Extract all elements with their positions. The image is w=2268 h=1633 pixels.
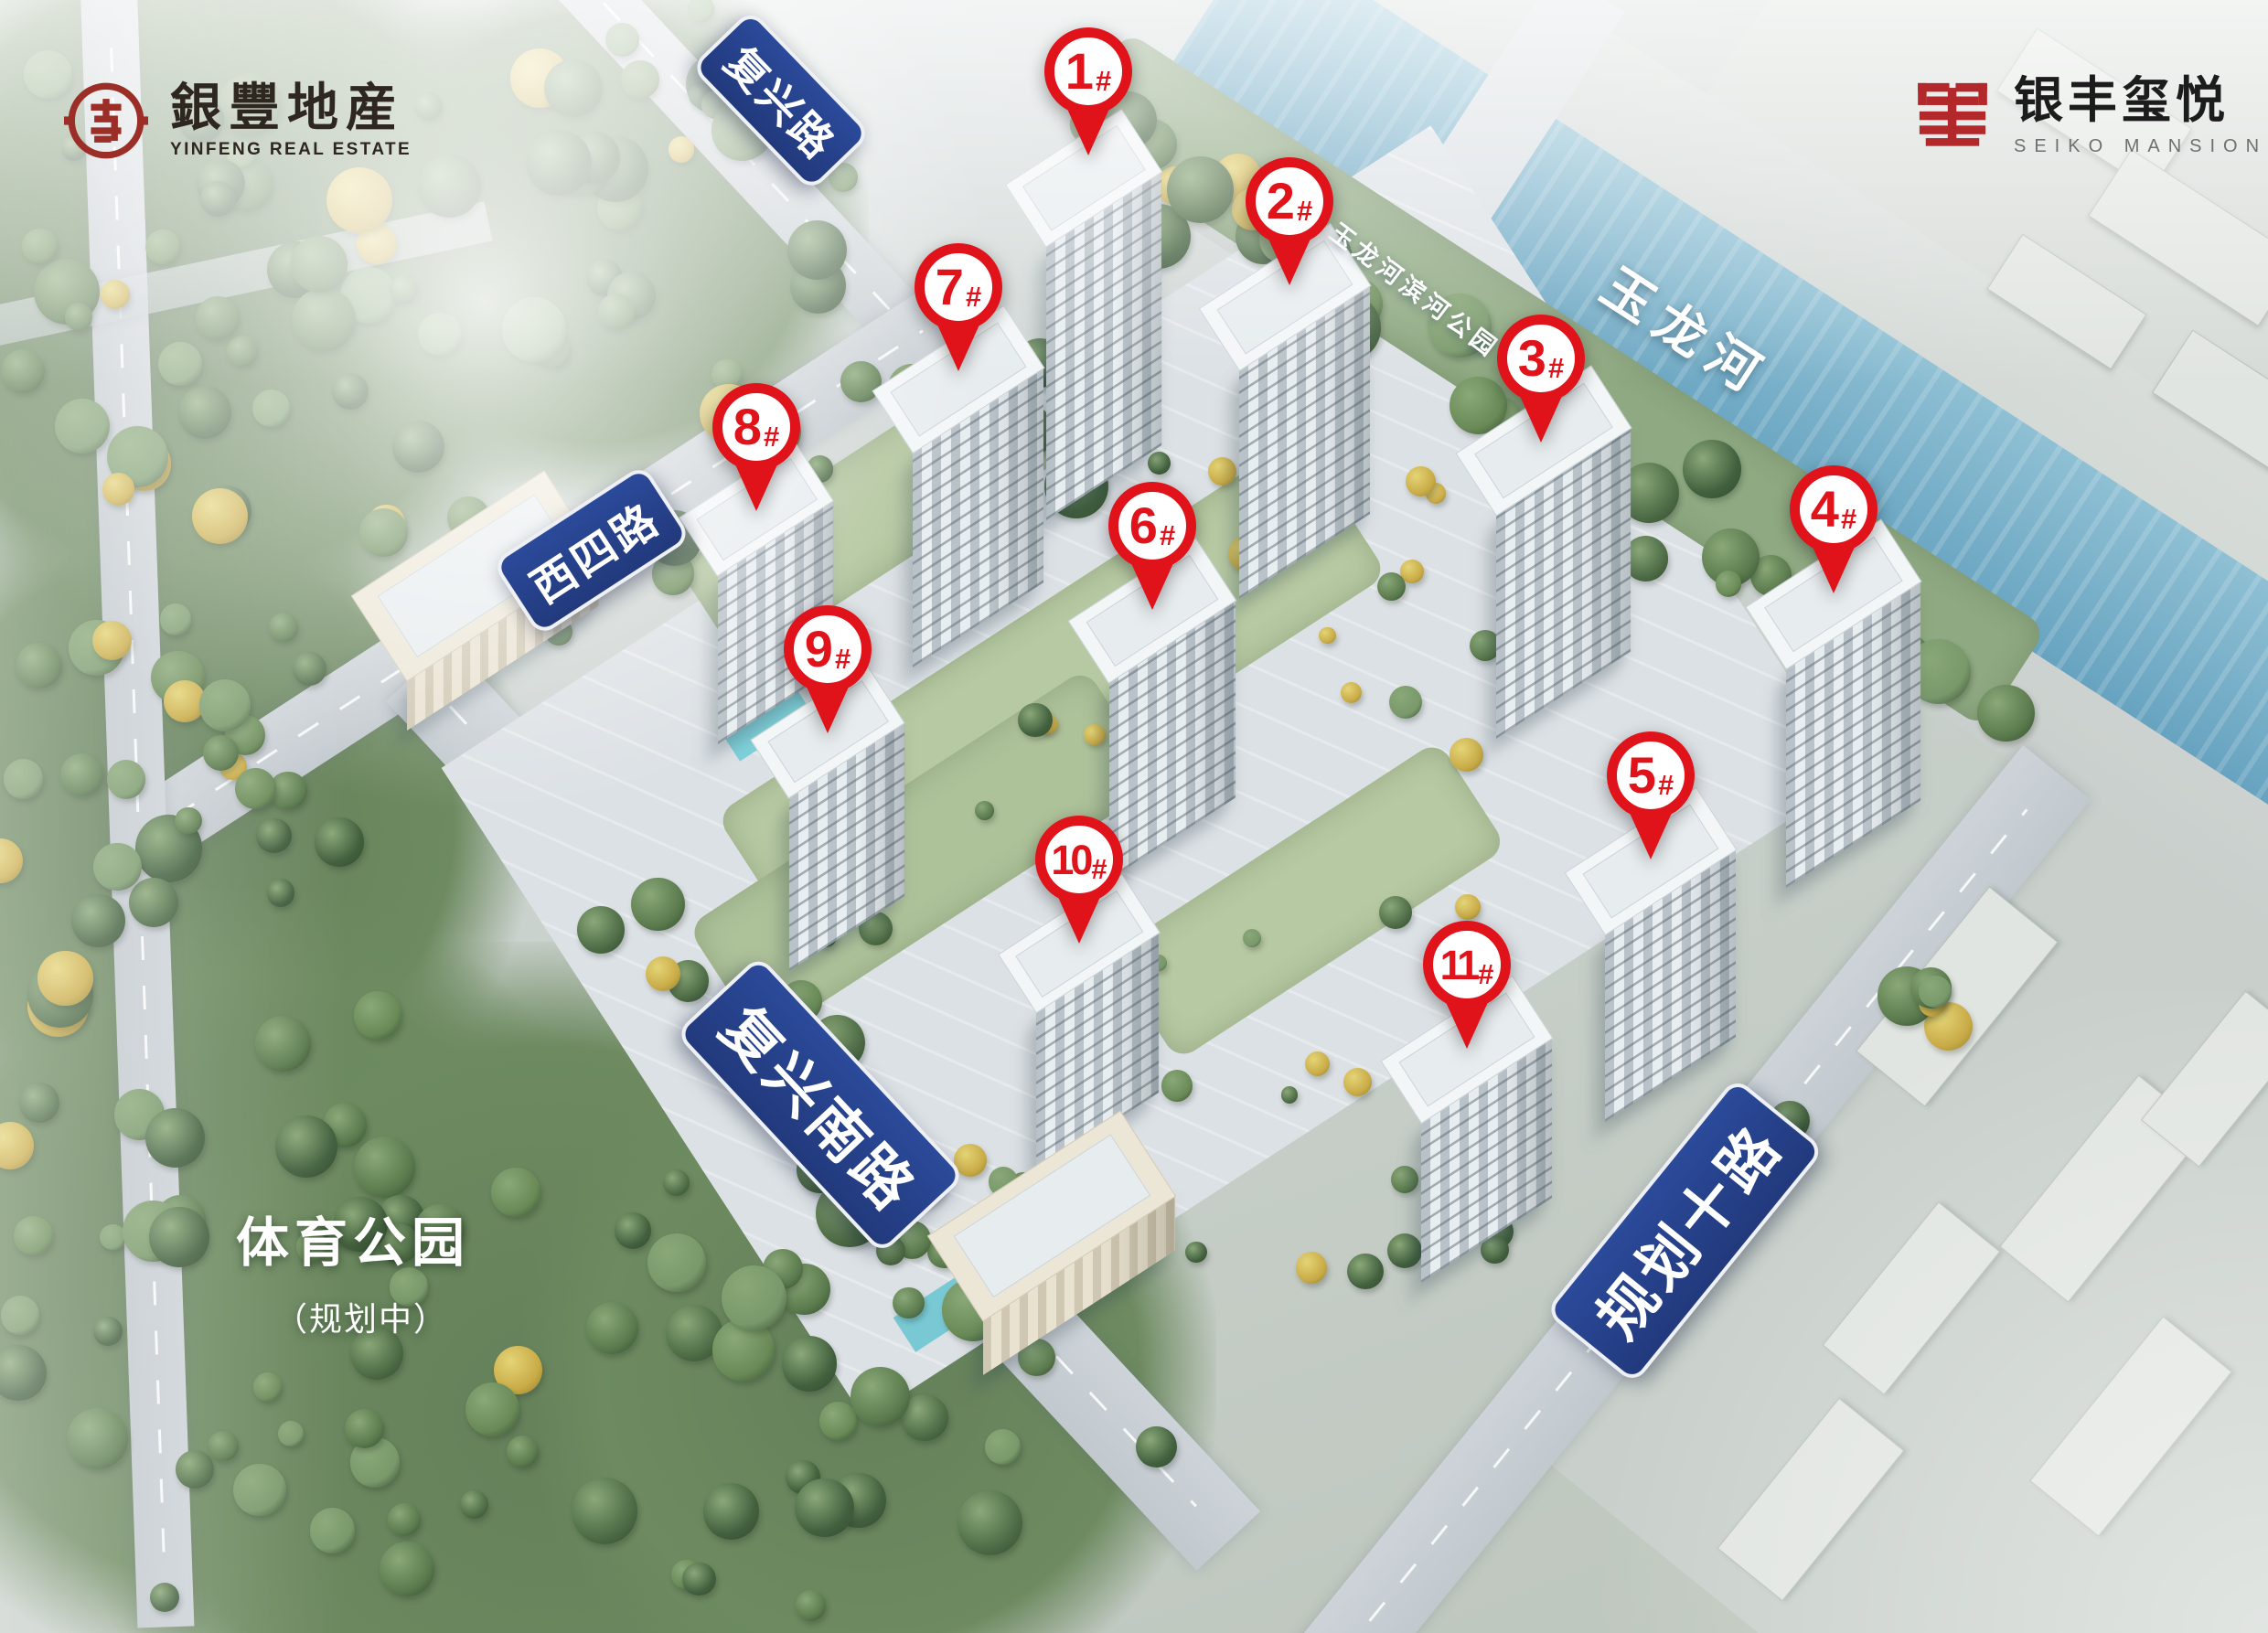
marker-hash: #	[966, 283, 981, 311]
marker-number: 8	[733, 401, 762, 453]
marker-hash: #	[835, 645, 850, 673]
river-name-label: 玉龙河	[1589, 247, 1785, 411]
annotations: 玉龙河玉龙河滨河公园复兴路西四路复兴南路规划十路1#2#3#4#5#6#7#8#…	[0, 0, 2268, 1633]
seiko-mansion-name-en: SEIKO MANSION	[2014, 136, 2267, 157]
marker-pin-circle: 6#	[1108, 482, 1196, 570]
yinfeng-logo: 銀豐地産 YINFENG REAL ESTATE	[64, 79, 412, 163]
marker-number: 4	[1811, 484, 1839, 535]
marker-pin-circle: 1#	[1044, 27, 1132, 115]
marker-number: 1	[1065, 46, 1094, 97]
marker-number: 3	[1518, 333, 1546, 384]
seiko-mansion-logo-text: 银丰玺悦 SEIKO MANSION	[2014, 75, 2267, 157]
marker-hash: #	[1096, 67, 1111, 95]
marker-pin-circle: 2#	[1246, 157, 1333, 245]
marker-hash: #	[1091, 855, 1107, 883]
sports-park-subtitle: （规划中）	[236, 1293, 470, 1340]
marker-number: 2	[1267, 176, 1295, 227]
marker-hash: #	[1160, 521, 1175, 550]
marker-hash: #	[1841, 505, 1856, 533]
sports-park-label: 体育公园 （规划中）	[236, 1200, 470, 1340]
road-banner-2: 西四路	[491, 464, 691, 636]
road-banner-3: 复兴南路	[675, 955, 965, 1254]
yinfeng-name-en: YINFENG REAL ESTATE	[170, 140, 412, 160]
yinfeng-logo-text: 銀豐地産 YINFENG REAL ESTATE	[170, 81, 412, 160]
marker-number: 5	[1628, 750, 1656, 801]
aerial-site-plan: 玉龙河玉龙河滨河公园复兴路西四路复兴南路规划十路1#2#3#4#5#6#7#8#…	[0, 0, 2268, 1633]
marker-hash: #	[1658, 771, 1674, 799]
marker-pin-circle: 8#	[712, 383, 800, 471]
marker-number: 11	[1440, 945, 1477, 986]
marker-number: 10	[1051, 839, 1089, 881]
marker-pin-circle: 10#	[1035, 816, 1123, 903]
marker-hash: #	[1478, 960, 1493, 988]
seiko-mansion-mark-icon	[1913, 77, 1992, 155]
marker-pin-circle: 4#	[1790, 465, 1878, 553]
marker-pin-circle: 7#	[915, 243, 1002, 331]
marker-hash: #	[764, 422, 779, 451]
marker-number: 7	[936, 261, 964, 313]
marker-pin-circle: 9#	[784, 605, 872, 693]
seiko-mansion-logo: 银丰玺悦 SEIKO MANSION	[1913, 75, 2267, 157]
road-banner-1: 复兴路	[690, 9, 872, 193]
marker-pin-circle: 11#	[1423, 921, 1511, 1009]
marker-hash: #	[1548, 354, 1564, 382]
marker-pin-circle: 3#	[1497, 315, 1585, 402]
marker-pin-circle: 5#	[1607, 731, 1695, 819]
marker-hash: #	[1297, 197, 1312, 225]
marker-number: 6	[1129, 500, 1158, 551]
yinfeng-seal-icon	[64, 79, 148, 163]
road-banner-4: 规划十路	[1545, 1077, 1824, 1384]
riverside-park-label: 玉龙河滨河公园	[1323, 213, 1508, 365]
sports-park-title: 体育公园	[236, 1200, 470, 1276]
seiko-mansion-name-cn: 银丰玺悦	[2014, 75, 2267, 127]
marker-number: 9	[805, 624, 833, 675]
yinfeng-name-cn: 銀豐地産	[170, 81, 412, 135]
